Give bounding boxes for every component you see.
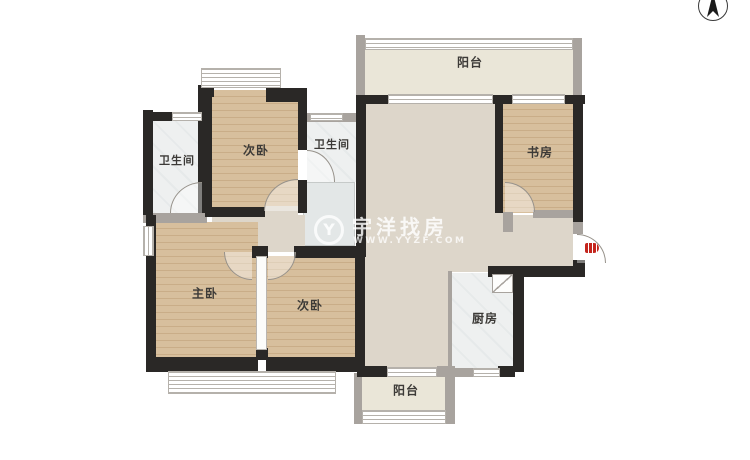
wall — [452, 368, 475, 377]
wall — [573, 95, 583, 222]
wall — [266, 357, 334, 372]
wall — [143, 112, 175, 121]
wall — [298, 100, 307, 150]
sink-icon — [492, 274, 513, 293]
wall — [205, 207, 265, 217]
window — [172, 112, 202, 121]
bay-window — [168, 371, 336, 394]
bay-window — [201, 68, 281, 88]
wall — [495, 100, 503, 213]
balcony-rail-window — [362, 410, 446, 424]
wall — [143, 110, 153, 215]
room-entry-floor — [503, 215, 583, 272]
floor-plan: 阳台 书房 次卧 卫生间 卫生间 主卧 次卧 厨房 阳台 Y 宇洋找房 WWW.… — [0, 0, 750, 460]
room-label-study: 书房 — [527, 144, 553, 161]
wall — [573, 38, 582, 95]
wall — [298, 180, 307, 213]
wall — [498, 366, 515, 377]
closet-partition — [256, 256, 267, 350]
room-label-kitchen: 厨房 — [472, 310, 498, 327]
room-living-floor — [365, 100, 505, 272]
window — [387, 367, 437, 377]
brand-logo-icon: Y — [314, 215, 344, 245]
wall — [503, 212, 513, 232]
wall — [573, 222, 583, 234]
north-compass-icon — [698, 0, 728, 21]
wall — [294, 246, 357, 258]
wall — [513, 266, 524, 372]
watermark-url: WWW.YYZF.COM — [353, 236, 466, 246]
window — [512, 94, 565, 104]
room-label-bath-left: 卫生间 — [159, 152, 195, 168]
wall — [355, 248, 365, 372]
window — [473, 368, 500, 377]
room-label-balcony-top: 阳台 — [457, 54, 483, 71]
balcony-rail-window — [365, 38, 573, 50]
room-label-master: 主卧 — [192, 285, 218, 302]
wall — [533, 210, 573, 218]
room-label-balcony-bottom: 阳台 — [393, 382, 419, 399]
window — [310, 113, 343, 121]
room-label-bedroom-mid: 次卧 — [297, 297, 323, 314]
wall — [146, 357, 258, 372]
entry-door-icon — [585, 243, 599, 253]
wall — [354, 373, 362, 424]
wall — [448, 271, 452, 372]
wall — [356, 35, 365, 95]
wall — [445, 375, 455, 424]
room-living-column-floor — [365, 268, 450, 372]
north-arrow-icon — [701, 0, 725, 19]
room-label-bedroom-top: 次卧 — [243, 142, 269, 159]
window — [143, 226, 154, 256]
sliding-door-window — [388, 94, 493, 104]
room-label-bath-mid: 卫生间 — [314, 136, 350, 152]
wall — [334, 357, 362, 372]
